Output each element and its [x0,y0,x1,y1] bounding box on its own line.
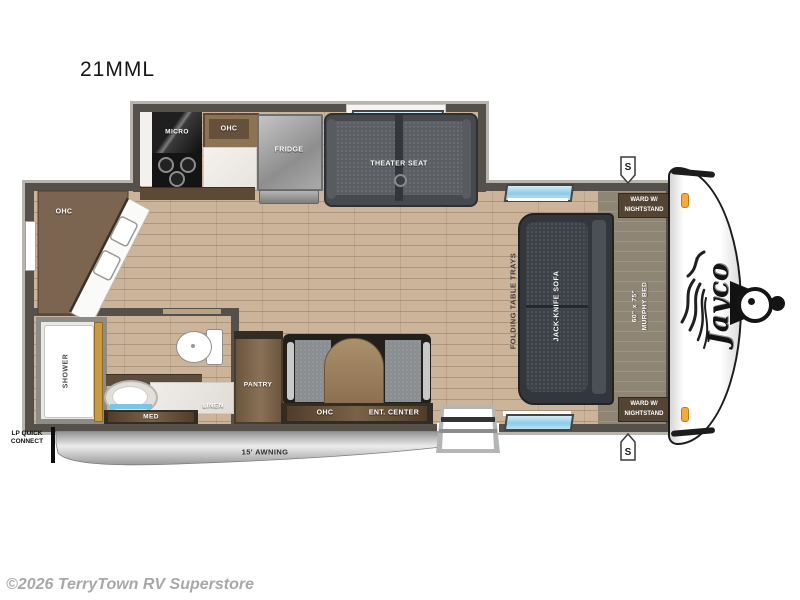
ent-center-label: ENT. CENTER [369,410,419,417]
fridge-vent [259,190,319,204]
dinette-armrest-left [287,342,294,400]
theater-seat-label: THEATER SEAT [370,161,427,168]
dinette-armrest-right [423,342,430,400]
pantry [234,331,283,424]
entry-step-bar-2 [439,429,497,433]
burner-icon [169,171,185,187]
burner-icon [180,157,196,173]
hitch-coupler-pin [748,298,755,305]
vanity-towel [110,404,152,409]
kitchen-base-cabinet [140,187,255,200]
wall-slide-right [478,104,486,192]
linen-label: LINEN [202,403,224,410]
burner-icon [158,157,174,173]
hitch-ball [770,296,785,311]
kitchen-ohc-label: OHC [221,126,238,133]
window-top-right-sill [508,198,568,201]
fridge-label: FRIDGE [275,147,304,154]
awning-label: 15' AWNING [242,448,289,457]
theater-armrest-left [327,119,336,199]
hitch-coupler [737,287,773,323]
marker-light-bottom [681,407,689,422]
shower-label: SHOWER [63,354,70,389]
sofa-back [592,220,606,394]
rear-ohc-label: OHC [56,209,73,216]
floorplan-canvas: 21MML OHC MICRO OHC [0,0,800,600]
kitchen-counter-marble [203,147,257,189]
lp-quick-connect-label: LP QUICK CONNECT [4,430,50,447]
pantry-top [234,331,283,339]
marker-light-top [681,193,689,208]
rear-kitchen-corner [34,186,164,320]
shower-door-strip [94,322,103,422]
toilet-flush-dot [191,344,195,348]
window-bottom [504,414,574,431]
svg-text:S: S [625,447,632,458]
lp-connect-mark [51,427,55,463]
microwave-label: MICRO [165,129,189,136]
speaker-badge-bottom: S [619,432,637,462]
theater-console [395,115,403,201]
dinette-seat-right [385,340,421,402]
entry-step-bar-1 [441,417,495,422]
svg-text:S: S [625,162,632,173]
theater-cupholder-icon [394,174,407,187]
dinette-table-arch [324,338,384,408]
wardrobe-top: WARD W/ NIGHTSTAND [618,193,670,218]
pantry-label: PANTRY [244,382,272,389]
speaker-badge-top: S [619,155,637,185]
ent-ohc-label: OHC [317,410,334,417]
murphy-bed-label: 60" x 75" MURPHY BED [631,282,652,331]
wardrobe-bottom: WARD W/ NIGHTSTAND [618,397,670,422]
model-title: 21MML [80,58,155,82]
med-label: MED [143,414,159,421]
theater-armrest-right [462,119,471,199]
bathroom-door [163,309,221,314]
brand-logo: Jayco [704,263,735,346]
folding-table-label: FOLDING TABLE TRAYS [509,253,518,350]
sofa-label: JACK-KNIFE SOFA [554,271,561,342]
watermark: ©2026 TerryTown RV Superstore [6,576,254,594]
